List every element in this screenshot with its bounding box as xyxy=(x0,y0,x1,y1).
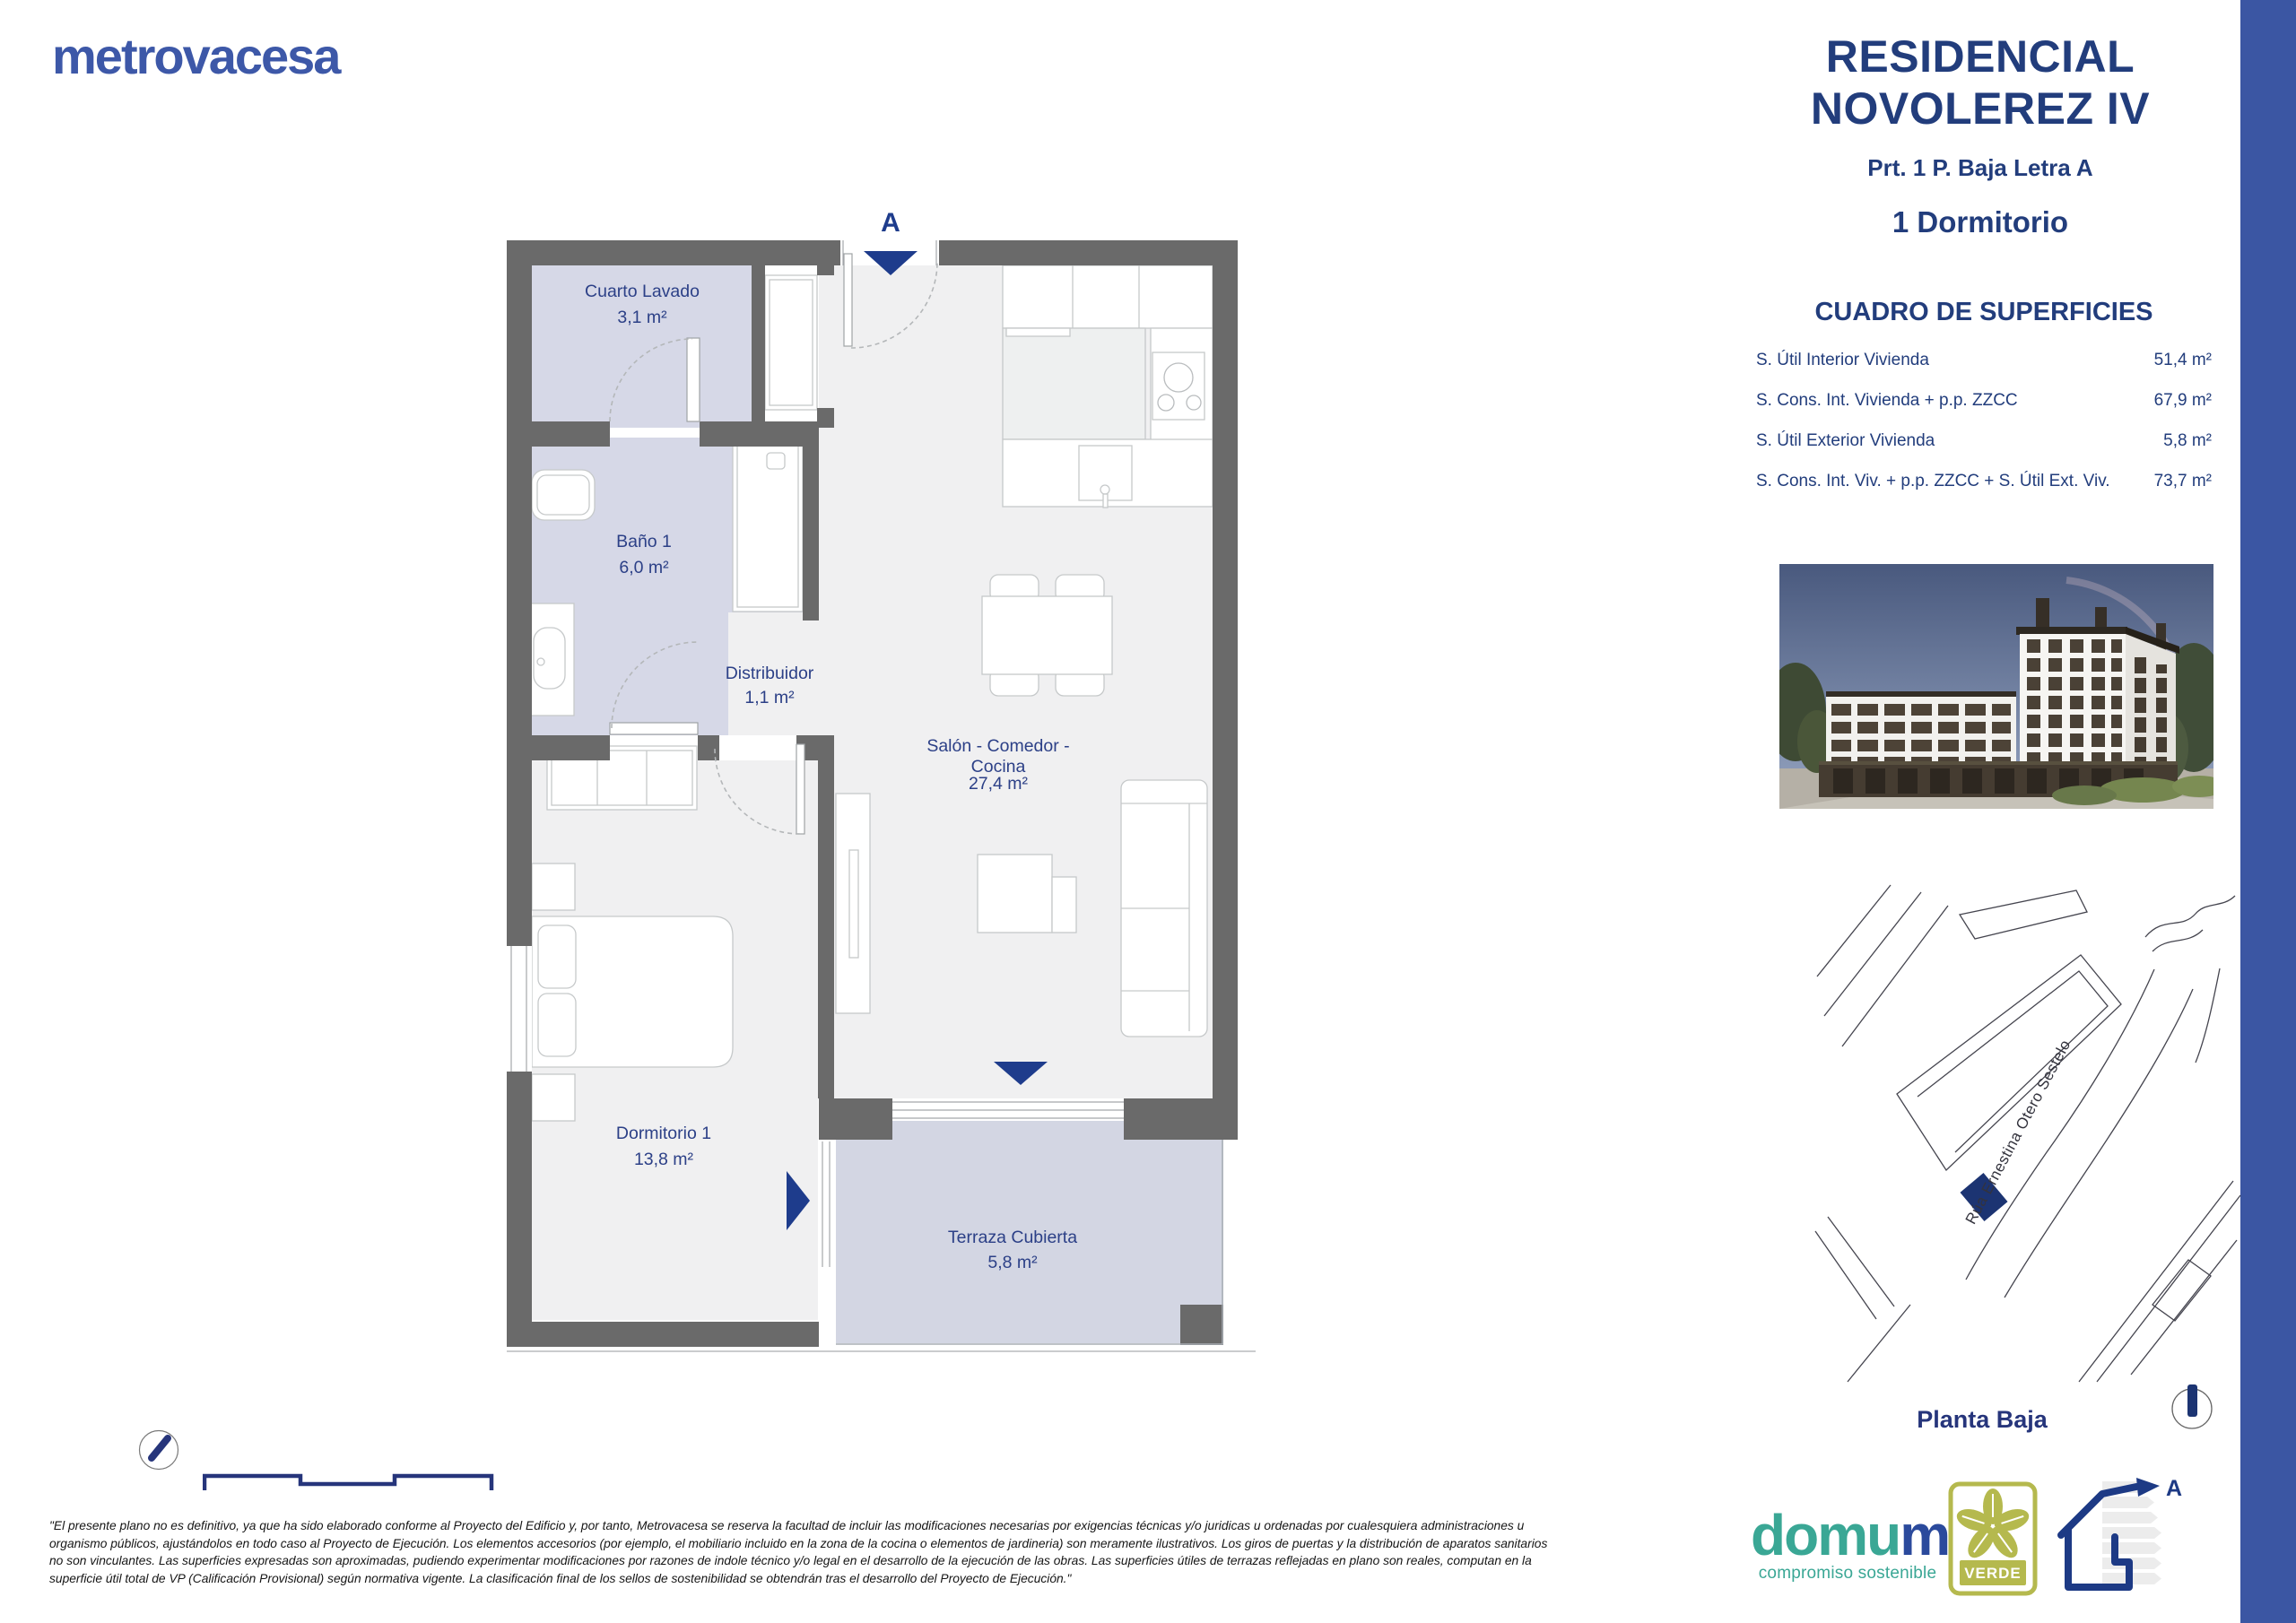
verde-badge-label: VERDE xyxy=(1964,1565,2022,1582)
coffee-table xyxy=(978,855,1052,933)
bathroom-door xyxy=(610,723,698,734)
room-name: Dormitorio 1 xyxy=(616,1124,711,1143)
surface-value: 73,7 m² xyxy=(2154,472,2212,491)
typology: 1 Dormitorio xyxy=(1749,205,2212,239)
surface-label: S. Útil Exterior Vivienda xyxy=(1756,431,1935,451)
dining-table xyxy=(982,596,1112,674)
surface-label: S. Útil Interior Vivienda xyxy=(1756,351,1929,370)
washbasin xyxy=(534,628,565,689)
room-name: Terraza Cubierta xyxy=(948,1228,1077,1247)
project-title-line1: RESIDENCIAL xyxy=(1749,30,2212,82)
bush xyxy=(2052,785,2117,805)
project-title-line2: NOVOLEREZ IV xyxy=(1749,82,2212,135)
unit-reference: Prt. 1 P. Baja Letra A xyxy=(1749,154,2212,182)
surface-row: S. Útil Interior Vivienda 51,4 m² xyxy=(1756,351,2212,370)
kitchen-furniture xyxy=(1003,265,1213,508)
domum-logo: domum compromiso sostenible xyxy=(1751,1508,1944,1584)
energy-arrow-head xyxy=(2136,1478,2160,1497)
surface-row: S. Cons. Int. Vivienda + p.p. ZZCC 67,9 … xyxy=(1756,391,2212,411)
metrovacesa-logo: metrovacesa xyxy=(52,27,339,85)
room-area: 1,1 m² xyxy=(744,688,795,707)
street-name: Rúa Ernestina Otero Sestelo xyxy=(1962,1037,2074,1227)
surface-value: 51,4 m² xyxy=(2154,351,2212,370)
scale-bar xyxy=(203,1469,495,1492)
domum-logo-text: domu xyxy=(1751,1503,1900,1567)
entrance-label: A xyxy=(881,208,900,238)
room-area: 27,4 m² xyxy=(969,774,1029,794)
laundry-door xyxy=(687,338,700,421)
surface-label: S. Cons. Int. Vivienda + p.p. ZZCC xyxy=(1756,391,2018,411)
legal-disclaimer: "El presente plano no es definitivo, ya … xyxy=(49,1517,1794,1587)
room-area: 13,8 m² xyxy=(634,1150,694,1169)
surface-row: S. Cons. Int. Viv. + p.p. ZZCC + S. Útil… xyxy=(1756,472,2212,491)
disclaimer-line: superficie útil total de VP (Calificació… xyxy=(49,1570,1794,1588)
room-name: Salón - Comedor - xyxy=(926,736,1069,756)
entrance-door xyxy=(844,254,852,346)
energy-class-label: A xyxy=(2166,1476,2182,1501)
shower xyxy=(733,439,803,612)
room-area: 6,0 m² xyxy=(619,558,669,577)
surface-label: S. Cons. Int. Viv. + p.p. ZZCC + S. Útil… xyxy=(1756,472,2110,491)
plan-compass-icon xyxy=(136,1428,183,1474)
nightstand xyxy=(532,864,575,910)
map-compass-icon xyxy=(2169,1381,2217,1435)
disclaimer-line: organismo públicos, ajustándolos en todo… xyxy=(49,1535,1794,1553)
room-area: 3,1 m² xyxy=(617,308,667,327)
side-accent-bar xyxy=(2240,0,2296,1623)
surface-table-title: CUADRO DE SUPERFICIES xyxy=(1756,298,2212,327)
bedroom-door xyxy=(796,744,804,834)
domum-tagline: compromiso sostenible xyxy=(1751,1564,1944,1584)
project-header: RESIDENCIAL NOVOLEREZ IV Prt. 1 P. Baja … xyxy=(1749,30,2212,239)
media-cabinet xyxy=(836,794,870,1013)
disclaimer-line: "El presente plano no es definitivo, ya … xyxy=(49,1517,1794,1535)
closet xyxy=(765,275,817,410)
room-name: Baño 1 xyxy=(616,532,672,551)
side-table xyxy=(1052,877,1076,933)
floor-caption: Planta Baja xyxy=(1874,1406,2090,1434)
nightstand xyxy=(532,1074,575,1121)
site-map: Rúa Ernestina Otero Sestelo xyxy=(1812,883,2242,1385)
surface-table: CUADRO DE SUPERFICIES S. Útil Interior V… xyxy=(1756,298,2212,512)
map-lines xyxy=(1815,885,2240,1382)
room-name: Distribuidor xyxy=(726,664,814,683)
pillow xyxy=(538,925,576,988)
surface-value: 67,9 m² xyxy=(2154,391,2212,411)
room-area: 5,8 m² xyxy=(987,1253,1038,1272)
pillow xyxy=(538,994,576,1056)
surface-value: 5,8 m² xyxy=(2163,431,2212,451)
floor-plan: A Cuarto Lavado 3,1 m² Baño 1 6,0 m² Dis… xyxy=(484,206,1256,1363)
energy-rating-icon: A xyxy=(2047,1472,2204,1602)
room-name: Cuarto Lavado xyxy=(585,282,700,301)
disclaimer-line: no son vinculantes. Las superficies expr… xyxy=(49,1552,1794,1570)
verde-badge-icon: VERDE xyxy=(1948,1481,2038,1596)
building-render-photo xyxy=(1779,564,2213,809)
surface-row: S. Útil Exterior Vivienda 5,8 m² xyxy=(1756,431,2212,451)
